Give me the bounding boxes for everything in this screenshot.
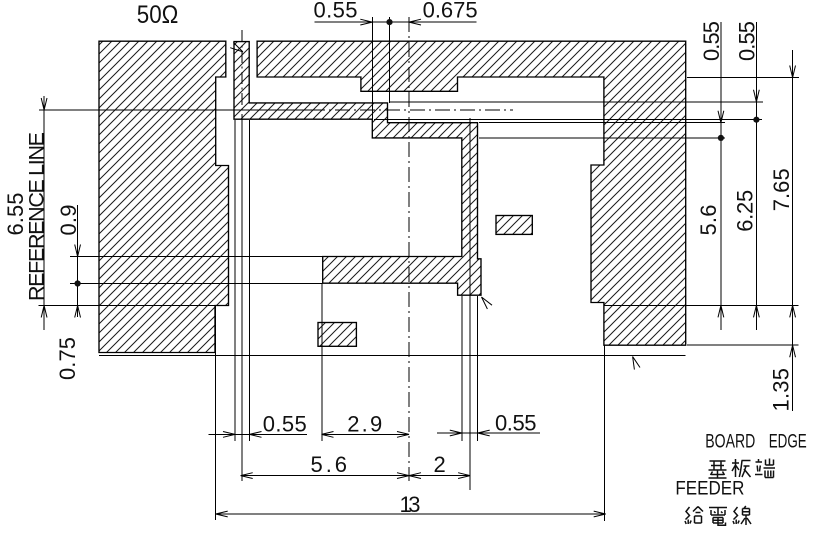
svg-text:0.55: 0.55 — [699, 21, 724, 61]
svg-text:5.6: 5.6 — [311, 452, 348, 477]
svg-text:0.9: 0.9 — [56, 205, 81, 236]
svg-text:0.55: 0.55 — [495, 411, 537, 436]
svg-text:7.65: 7.65 — [769, 168, 794, 211]
svg-text:5.6: 5.6 — [696, 205, 721, 236]
svg-text:EDGE: EDGE — [769, 431, 807, 452]
svg-text:FEEDER: FEEDER — [675, 479, 744, 500]
svg-text:2.9: 2.9 — [347, 412, 382, 437]
svg-text:0.55: 0.55 — [735, 21, 760, 61]
svg-text:0.55: 0.55 — [314, 0, 358, 23]
svg-text:2: 2 — [434, 452, 446, 477]
svg-text:50Ω: 50Ω — [137, 1, 179, 29]
svg-text:BOARD: BOARD — [705, 431, 755, 452]
svg-text:13: 13 — [400, 492, 421, 517]
svg-text:REFERENCE LINE: REFERENCE LINE — [25, 132, 49, 301]
svg-text:0.75: 0.75 — [55, 337, 80, 380]
svg-text:0.55: 0.55 — [263, 412, 307, 437]
svg-text:1.35: 1.35 — [769, 368, 794, 412]
svg-text:0.675: 0.675 — [423, 0, 478, 23]
svg-text:6.25: 6.25 — [733, 190, 758, 232]
